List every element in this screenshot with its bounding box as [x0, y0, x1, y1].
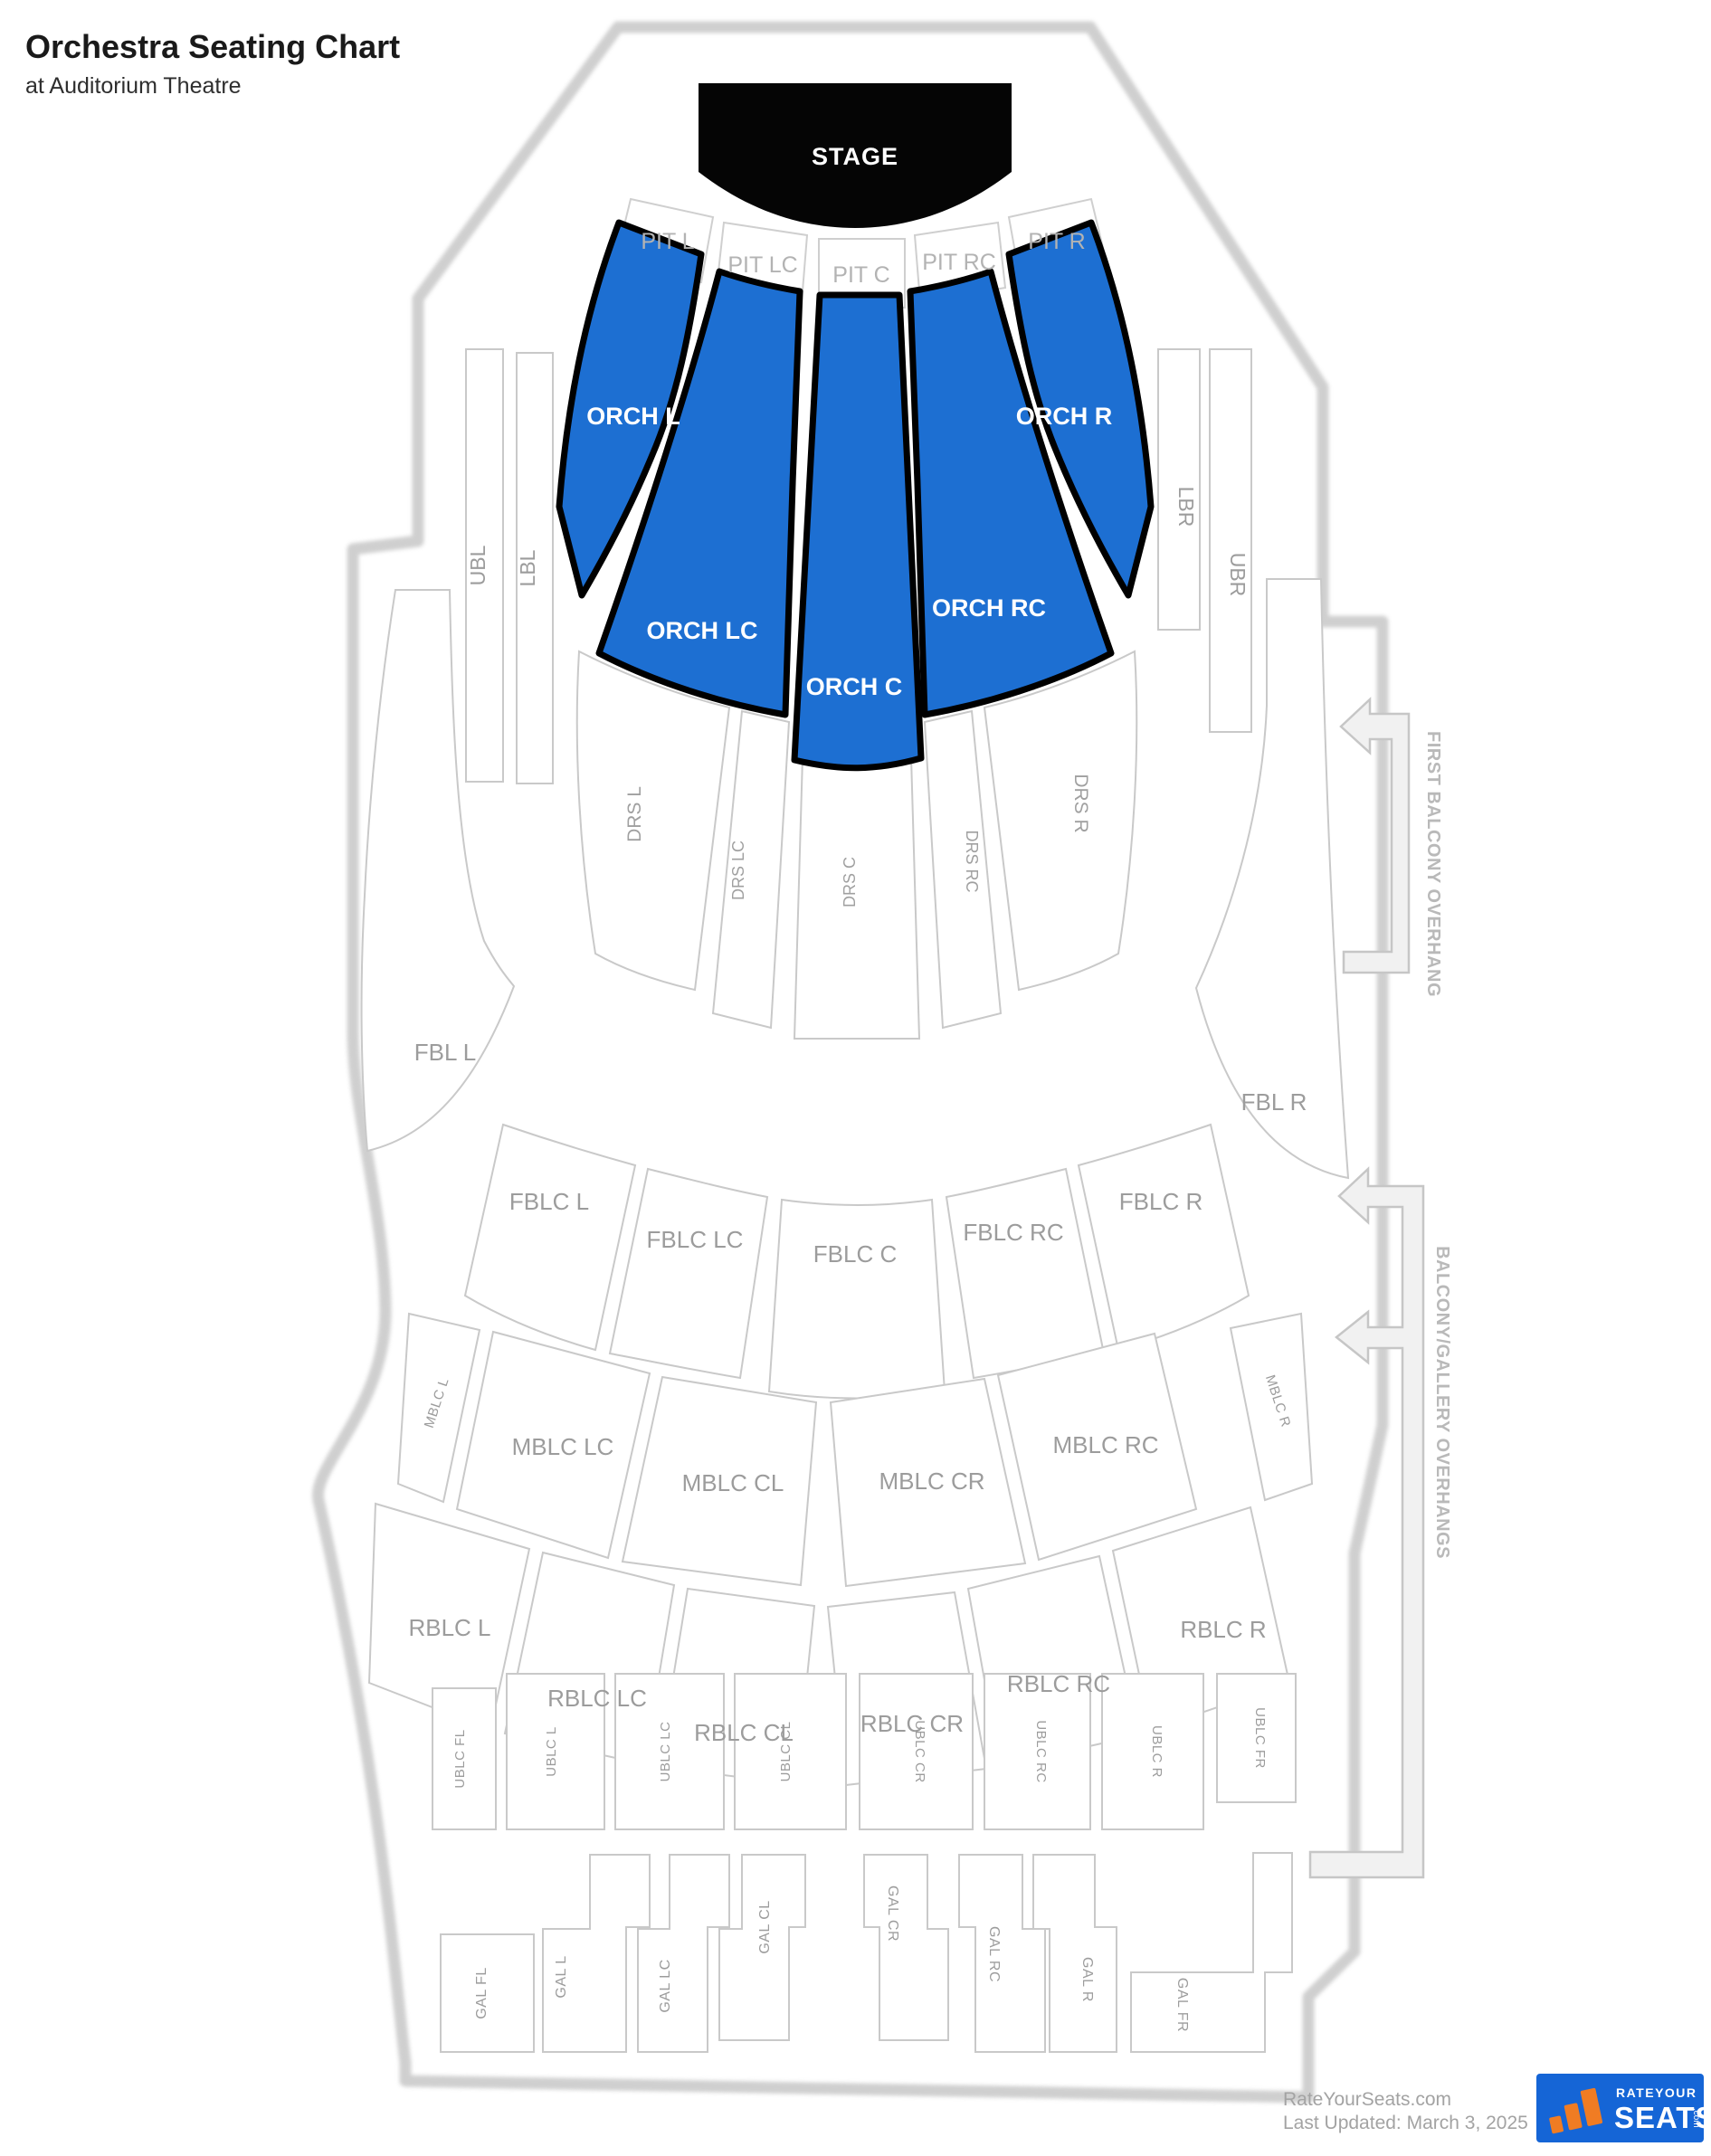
- gal-l-label: GAL L: [554, 1955, 569, 1998]
- mblc-lc-label: MBLC LC: [512, 1433, 614, 1460]
- orch-l-label: ORCH L: [586, 403, 680, 430]
- section-mblc-r[interactable]: [1231, 1314, 1312, 1500]
- gal-cl-label: GAL CL: [757, 1900, 773, 1953]
- gal-fl-label: GAL FL: [474, 1967, 490, 2019]
- drs-c-label: DRS C: [841, 857, 859, 907]
- section-drs-rc[interactable]: [925, 711, 1001, 1028]
- ublc-fl-label: UBLC FL: [452, 1729, 468, 1788]
- fblc-c-label: FBLC C: [813, 1240, 897, 1268]
- section-drs-l[interactable]: [577, 651, 729, 990]
- fblc-rc-label: FBLC RC: [963, 1219, 1063, 1246]
- gal-cr-label: GAL CR: [885, 1885, 900, 1942]
- logo-com-text: .com: [1691, 2108, 1701, 2128]
- pit-l-label: PIT L: [641, 229, 694, 254]
- ublc-lc-label: UBLC LC: [658, 1722, 673, 1782]
- logo-rateyour-text: RATEYOUR: [1616, 2085, 1697, 2100]
- section-fblc-rc[interactable]: [946, 1169, 1104, 1378]
- section-fblc-c[interactable]: [769, 1200, 945, 1399]
- fbl-r-label: FBL R: [1241, 1088, 1307, 1116]
- ublc-r-label: UBLC R: [1149, 1725, 1164, 1778]
- rblc-rc-label: RBLC RC: [1007, 1670, 1110, 1697]
- fblc-lc-label: FBLC LC: [647, 1226, 744, 1253]
- ublc-l-label: UBLC L: [544, 1726, 559, 1777]
- stage-label: STAGE: [812, 143, 898, 170]
- footer-site: RateYourSeats.com: [1283, 2089, 1451, 2110]
- balcony-gallery-overhangs-label: BALCONY/GALLERY OVERHANGS: [1432, 1246, 1452, 1559]
- section-ubr[interactable]: [1210, 349, 1251, 732]
- gal-lc-label: GAL LC: [658, 1959, 673, 2012]
- section-fblc-r[interactable]: [1079, 1125, 1249, 1350]
- lbr-label: LBR: [1174, 487, 1198, 527]
- orch-rc-label: ORCH RC: [932, 594, 1046, 622]
- mblc-cl-label: MBLC CL: [682, 1469, 784, 1496]
- gal-rc-label: GAL RC: [986, 1926, 1002, 1982]
- section-gal-lc[interactable]: [638, 1855, 729, 2052]
- rblc-lc-label: RBLC LC: [547, 1685, 647, 1712]
- pit-lc-label: PIT LC: [727, 252, 797, 278]
- seating-chart-canvas: Orchestra Seating Chart at Auditorium Th…: [0, 0, 1711, 2156]
- fblc-l-label: FBLC L: [509, 1188, 589, 1215]
- section-drs-r[interactable]: [984, 651, 1136, 990]
- ubl-label: UBL: [466, 545, 490, 585]
- gal-r-label: GAL R: [1079, 1957, 1095, 2002]
- first-balcony-overhang-label: FIRST BALCONY OVERHANG: [1423, 731, 1443, 997]
- page-subtitle: at Auditorium Theatre: [25, 73, 242, 99]
- page-title: Orchestra Seating Chart: [25, 28, 400, 65]
- section-drs-lc[interactable]: [713, 711, 789, 1028]
- ubr-label: UBR: [1226, 553, 1250, 597]
- fbl-l-label: FBL L: [414, 1039, 476, 1066]
- lbl-label: LBL: [516, 549, 539, 586]
- first-balcony-overhang-arrow: [1341, 699, 1409, 973]
- rblc-r-label: RBLC R: [1180, 1616, 1266, 1643]
- rateyourseats-logo[interactable]: RATEYOUR SEATS .com: [1536, 2074, 1711, 2142]
- fblc-r-label: FBLC R: [1119, 1188, 1202, 1215]
- orch-c-label: ORCH C: [806, 673, 903, 700]
- pit-c-label: PIT C: [832, 262, 889, 288]
- orch-r-label: ORCH R: [1016, 403, 1113, 430]
- drs-l-label: DRS L: [624, 786, 645, 842]
- section-gal-cr[interactable]: [864, 1855, 948, 2040]
- mblc-rc-label: MBLC RC: [1052, 1431, 1158, 1458]
- drs-rc-label: DRS RC: [963, 830, 981, 892]
- drs-r-label: DRS R: [1070, 774, 1091, 832]
- mblc-cr-label: MBLC CR: [879, 1467, 984, 1495]
- section-fblc-lc[interactable]: [610, 1169, 767, 1378]
- orch-lc-label: ORCH LC: [647, 617, 758, 644]
- ublc-cr-label: UBLC CR: [912, 1720, 927, 1782]
- ublc-rc-label: UBLC RC: [1033, 1720, 1049, 1782]
- drs-lc-label: DRS LC: [729, 841, 747, 900]
- rblc-cr-label: RBLC CR: [860, 1710, 964, 1737]
- ublc-fr-label: UBLC FR: [1252, 1707, 1268, 1769]
- footer-updated: Last Updated: March 3, 2025: [1283, 2113, 1528, 2133]
- rblc-l-label: RBLC L: [408, 1614, 490, 1641]
- pit-r-label: PIT R: [1028, 229, 1085, 254]
- pit-rc-label: PIT RC: [922, 250, 996, 275]
- section-gal-fr[interactable]: [1131, 1853, 1292, 2052]
- gal-fr-label: GAL FR: [1174, 1978, 1190, 2032]
- section-fblc-l[interactable]: [465, 1125, 635, 1350]
- ublc-cl-label: UBLC CL: [778, 1722, 794, 1782]
- section-gal-l[interactable]: [543, 1855, 650, 2052]
